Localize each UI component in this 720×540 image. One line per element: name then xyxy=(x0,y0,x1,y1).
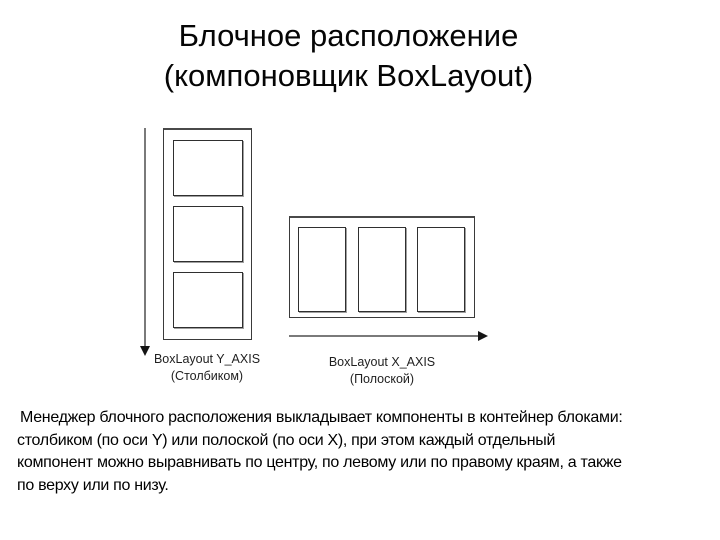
x-axis-arrow-head-icon xyxy=(478,331,488,341)
component-box xyxy=(173,140,243,196)
y-axis-arrow-line xyxy=(144,128,146,346)
x-axis-caption: BoxLayout X_AXIS (Полоской) xyxy=(306,354,458,387)
y-axis-caption-label: BoxLayout Y_AXIS xyxy=(131,351,283,368)
y-axis-container-diagram xyxy=(163,128,252,340)
slide-title-line-1: Блочное расположение xyxy=(0,16,697,56)
slide-title: Блочное расположение (компоновщик BoxLay… xyxy=(0,16,697,96)
description-line-3: компонент можно выравнивать по центру, п… xyxy=(17,452,707,475)
slide: Блочное расположение (компоновщик BoxLay… xyxy=(0,0,720,540)
x-axis-container-diagram xyxy=(289,216,475,318)
x-axis-caption-label: BoxLayout X_AXIS xyxy=(306,354,458,371)
slide-title-line-2: (компоновщик BoxLayout) xyxy=(0,56,697,96)
x-axis-arrow-line xyxy=(289,335,480,337)
y-axis-caption: BoxLayout Y_AXIS (Столбиком) xyxy=(131,351,283,384)
description-line-4: по верху или по низу. xyxy=(17,475,707,498)
description-line-2: столбиком (по оси Y) или полоской (по ос… xyxy=(17,430,707,453)
x-axis-caption-sublabel: (Полоской) xyxy=(306,371,458,388)
component-box xyxy=(358,227,406,312)
component-box xyxy=(173,272,243,328)
description-line-1: Менеджер блочного расположения выкладыва… xyxy=(17,407,707,430)
y-axis-caption-sublabel: (Столбиком) xyxy=(131,368,283,385)
component-box xyxy=(173,206,243,262)
component-box xyxy=(298,227,346,312)
description-paragraph: Менеджер блочного расположения выкладыва… xyxy=(17,407,707,497)
component-box xyxy=(417,227,465,312)
